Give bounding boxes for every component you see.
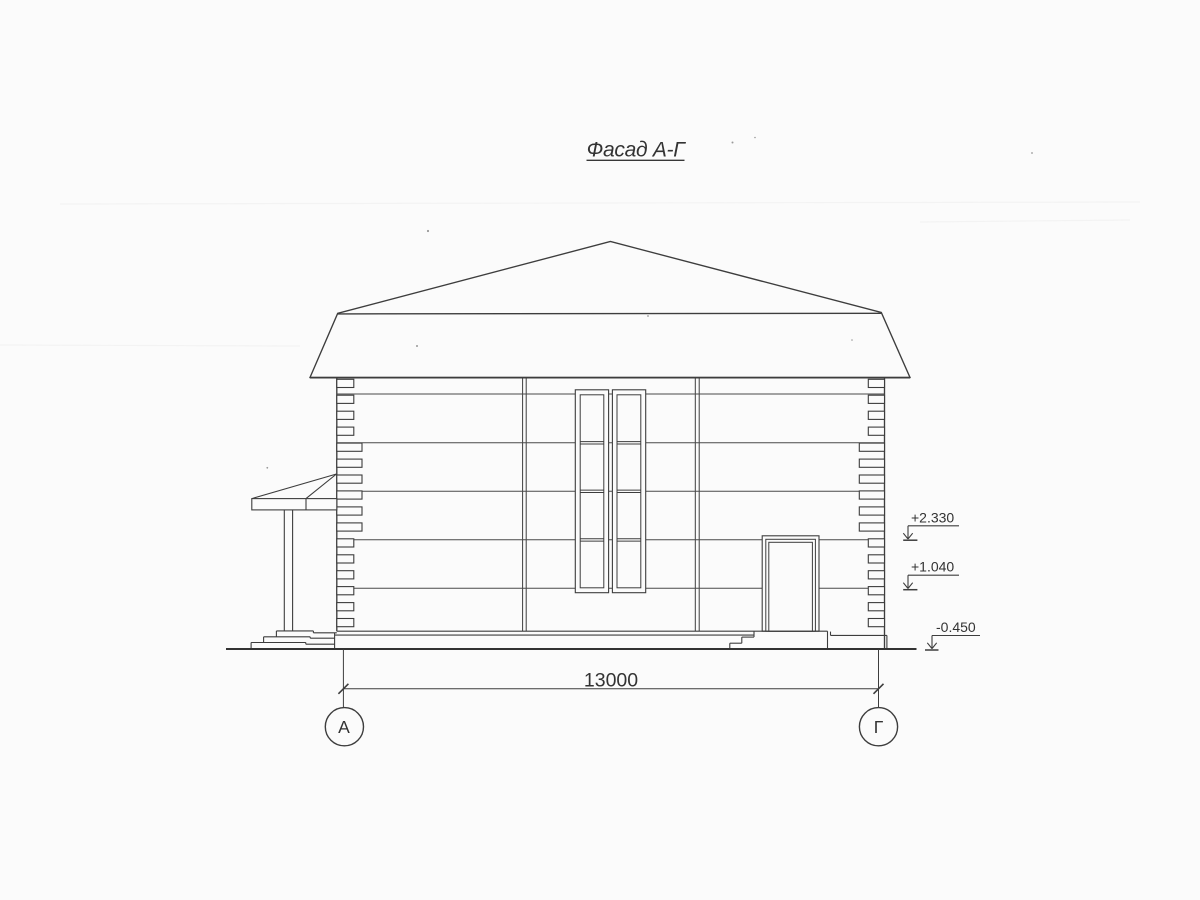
svg-text:+2.330: +2.330 <box>911 509 954 525</box>
svg-text:Фасад А-Г: Фасад А-Г <box>587 138 687 161</box>
svg-text:-0.450: -0.450 <box>936 619 976 635</box>
svg-text:13000: 13000 <box>584 669 638 691</box>
svg-text:Г: Г <box>874 717 884 737</box>
svg-text:А: А <box>338 717 350 737</box>
svg-text:+1.040: +1.040 <box>911 559 954 575</box>
